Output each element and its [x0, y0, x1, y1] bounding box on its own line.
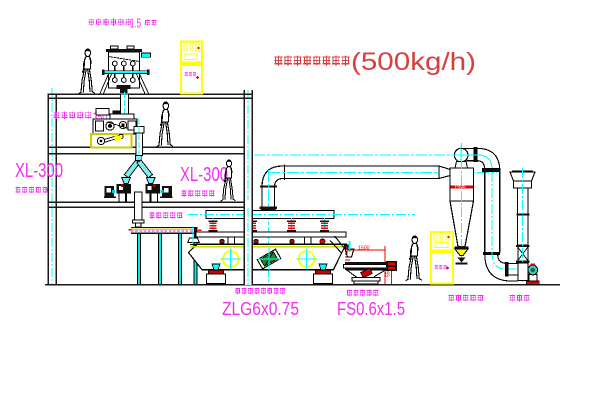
svg-text:XL-300: XL-300	[180, 164, 228, 186]
svg-text:ZLG6x0.75: ZLG6x0.75	[222, 299, 299, 319]
svg-text:(500kg/h): (500kg/h)	[351, 48, 476, 76]
svg-text:P400: P400	[455, 184, 466, 189]
svg-text:FS0.6x1.5: FS0.6x1.5	[337, 299, 405, 319]
svg-text:1.5: 1.5	[130, 17, 141, 31]
svg-text:1500: 1500	[358, 245, 370, 251]
svg-text:XL-300: XL-300	[15, 160, 63, 182]
